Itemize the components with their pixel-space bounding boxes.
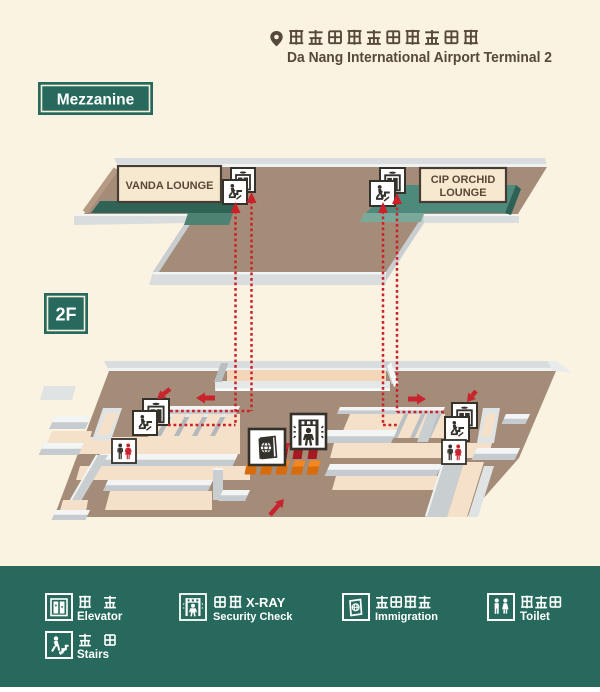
svg-text:Da Nang International Airport: Da Nang International Airport Terminal 2 [287, 50, 552, 66]
svg-text:VANDA LOUNGE: VANDA LOUNGE [126, 180, 214, 192]
svg-text:Immigration: Immigration [375, 611, 438, 623]
svg-text:Mezzanine: Mezzanine [57, 92, 135, 109]
svg-text:Security Check: Security Check [213, 611, 293, 623]
svg-text:CIP ORCHID: CIP ORCHID [431, 174, 496, 186]
svg-text:LOUNGE: LOUNGE [439, 187, 486, 199]
svg-text:2F: 2F [55, 305, 76, 325]
svg-text:Elevator: Elevator [77, 611, 123, 623]
svg-text:Toilet: Toilet [520, 611, 550, 623]
svg-text:X-RAY: X-RAY [246, 595, 286, 610]
svg-text:Stairs: Stairs [77, 649, 109, 661]
